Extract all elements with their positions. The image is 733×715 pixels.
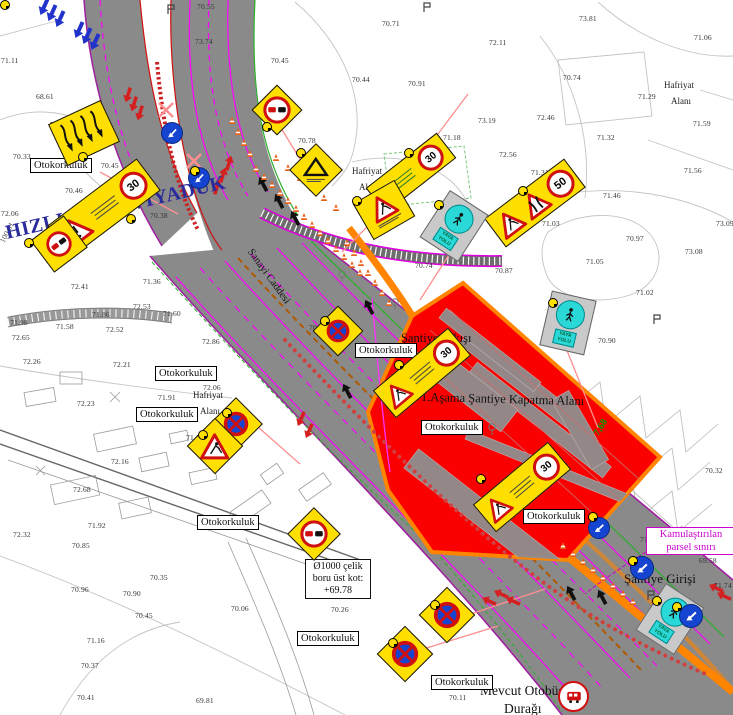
elevation-label: 72.86 (202, 337, 220, 346)
sign-marker (198, 430, 208, 440)
sign-marker (24, 238, 34, 248)
no-overtaking-icon (263, 96, 291, 124)
elevation-label: 70.55 (197, 2, 215, 11)
elevation-label: 71.86 (92, 310, 110, 319)
sign-marker (672, 602, 682, 612)
sign-text-lines (88, 192, 122, 222)
sign-marker (434, 200, 444, 210)
sign-marker (352, 196, 362, 206)
bus-stop-icon (558, 681, 589, 712)
elevation-label: 71.11 (1, 56, 19, 65)
white-arrow-icon (681, 606, 702, 627)
elevation-label: 72.26 (23, 357, 41, 366)
elevation-label: 70.45 (135, 611, 153, 620)
pedestrian-icon (558, 303, 582, 327)
no-overtaking-icon (300, 520, 328, 548)
bus-stop-label-2: Durağı (504, 701, 542, 715)
expropriated-parcel-box: Kamulaştırılan parsel sınırı (646, 527, 733, 555)
elevation-label: 70.71 (382, 19, 400, 28)
elevation-label: 71.91 (158, 393, 176, 402)
elevation-label: 73.09 (716, 219, 733, 228)
elevation-label: 70.96 (71, 585, 89, 594)
sign-marker (262, 122, 272, 132)
elevation-label: 70.41 (77, 693, 95, 702)
pipe-note-l2: boru üst kot: (313, 573, 364, 584)
sign-marker (388, 638, 398, 648)
elevation-label: 71.32 (597, 133, 615, 142)
elevation-label: 71.02 (636, 288, 654, 297)
elevation-label: 70.38 (150, 211, 168, 220)
elevation-label: 71.16 (87, 636, 105, 645)
pipe-note-l3: +69.78 (324, 585, 352, 596)
elevation-label: 71.60 (163, 309, 181, 318)
sign-marker (628, 556, 638, 566)
sign-text-lines (406, 359, 437, 387)
elevation-label: 71.18 (443, 133, 461, 142)
elevation-label: 71.58 (56, 322, 74, 331)
elevation-label: 72.65 (12, 333, 30, 342)
elevation-label: 71.92 (88, 521, 106, 530)
elevation-label: 70.33 (13, 152, 31, 161)
elevation-label: 72.21 (113, 360, 131, 369)
guardrail-label: Otokorkuluk (421, 420, 483, 435)
sign-marker (222, 408, 232, 418)
elevation-label: 70.35 (150, 573, 168, 582)
excavation-area-label: Alanı (671, 96, 691, 106)
guardrail-label: Otokorkuluk (155, 366, 217, 381)
elevation-label: 70.90 (598, 336, 616, 345)
elevation-label: 68.61 (36, 92, 54, 101)
elevation-label: 70.87 (495, 266, 513, 275)
sign-marker (430, 600, 440, 610)
elevation-label: 71.29 (638, 92, 656, 101)
sign-marker (652, 596, 662, 606)
elevation-label: 72.52 (106, 325, 124, 334)
elevation-label: 71.56 (684, 166, 702, 175)
elevation-label: 70.46 (65, 186, 83, 195)
elevation-label: 70.11 (449, 693, 467, 702)
sign-marker (126, 214, 136, 224)
sign-text-lines (506, 473, 537, 501)
elevation-label: 71.05 (586, 257, 604, 266)
elevation-label: 72.56 (499, 150, 517, 159)
elevation-label: 70.97 (626, 234, 644, 243)
elevation-label: 70.74 (563, 73, 581, 82)
sign-marker (78, 152, 88, 162)
no-overtaking-icon (41, 226, 77, 262)
elevation-label: 73.81 (579, 14, 597, 23)
excavation-area-label: Hafriyat (193, 390, 223, 400)
sign-marker (320, 316, 330, 326)
elevation-label: 71.03 (542, 219, 560, 228)
white-arrow-icon (162, 123, 182, 143)
site-plan-canvas: HIZLI TREN VİYADÜK 100.01 Sanayi Caddesi… (0, 0, 733, 715)
expropriated-line2: parsel sınırı (666, 542, 715, 553)
elevation-label: 72.23 (77, 399, 95, 408)
elevation-label: 71.59 (693, 119, 711, 128)
elevation-label: 70.44 (352, 75, 370, 84)
triangle-icon (303, 157, 329, 177)
elevation-label: 72.41 (71, 282, 89, 291)
elevation-label: 70.32 (705, 466, 723, 475)
guardrail-label: Otokorkuluk (197, 515, 259, 530)
elevation-label: 70.74 (415, 261, 433, 270)
pipe-note-l1: Ø1000 çelik (313, 561, 362, 572)
elevation-label: 72.32 (13, 530, 31, 539)
elevation-label: 70.45 (271, 56, 289, 65)
elevation-label: 70.26 (331, 605, 349, 614)
elevation-label: 71.36 (143, 277, 161, 286)
elevation-label: 70.90 (123, 589, 141, 598)
elevation-label: 72.46 (537, 113, 555, 122)
elevation-label: 71.74 (714, 581, 732, 590)
elevation-label: 72.53 (133, 302, 151, 311)
elevation-label: 70.85 (72, 541, 90, 550)
guardrail-label: Otokorkuluk (523, 509, 585, 524)
elevation-label: 72.68 (73, 485, 91, 494)
elevation-label: 71.06 (694, 33, 712, 42)
elevation-label: 71.46 (603, 191, 621, 200)
expropriated-line1: Kamulaştırılan (660, 529, 722, 540)
excavation-area-label: Hafriyat (352, 166, 382, 176)
sign-marker (518, 186, 528, 196)
elevation-label: 72.06 (1, 209, 19, 218)
sign-marker (548, 298, 558, 308)
elevation-label: 73.08 (685, 247, 703, 256)
elevation-label: 73.74 (195, 37, 213, 46)
guardrail-label: Otokorkuluk (136, 407, 198, 422)
sign-marker (296, 148, 306, 158)
pedestrian-icon (445, 205, 473, 233)
elevation-label: 72.11 (489, 38, 507, 47)
elevation-label: 70.45 (101, 161, 119, 170)
elevation-label: 70.06 (231, 604, 249, 613)
sign-marker (190, 166, 200, 176)
elevation-label: 71.98 (10, 318, 28, 327)
excavation-area-label: Hafriyat (664, 80, 694, 90)
elevation-label: 70.37 (81, 661, 99, 670)
elevation-label: 69.81 (196, 696, 214, 705)
sign-marker (476, 474, 486, 484)
steel-pipe-note: Ø1000 çelik boru üst kot: +69.78 (305, 559, 371, 599)
guardrail-label: Otokorkuluk (355, 343, 417, 358)
elevation-label: 69.58 (699, 556, 717, 565)
guardrail-label: Otokorkuluk (431, 675, 493, 690)
sign-marker (394, 360, 404, 370)
elevation-label: 73.19 (478, 116, 496, 125)
elevation-label: 70.78 (298, 136, 316, 145)
elevation-label: 70.91 (408, 79, 426, 88)
sign-marker (0, 0, 10, 10)
sign-marker (404, 148, 414, 158)
elevation-label: 72.16 (111, 457, 129, 466)
guardrail-label: Otokorkuluk (297, 631, 359, 646)
sign-marker (588, 512, 598, 522)
